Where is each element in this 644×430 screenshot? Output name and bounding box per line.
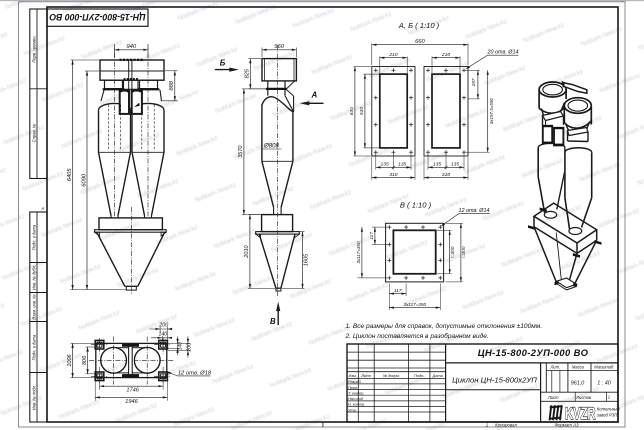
- svg-text:Листов: Листов: [575, 395, 592, 400]
- svg-text:1. Все размеры для справок, до: 1. Все размеры для справок, допустимые о…: [346, 322, 543, 330]
- svg-text:140: 140: [158, 331, 167, 337]
- svg-text:961,0: 961,0: [571, 381, 585, 387]
- svg-text:210: 210: [441, 52, 450, 58]
- svg-text:Подп. и дата: Подп. и дата: [31, 224, 36, 250]
- svg-text:3570: 3570: [238, 145, 244, 158]
- svg-text:ЦН-15-800-2УП-000 ВО: ЦН-15-800-2УП-000 ВО: [478, 347, 589, 358]
- svg-text:310: 310: [389, 172, 397, 178]
- svg-text:А, Б ( 1:10 ): А, Б ( 1:10 ): [398, 21, 440, 30]
- svg-text:Подп. и дата: Подп. и дата: [31, 334, 36, 360]
- svg-text:Инв. № дубл.: Инв. № дубл.: [31, 265, 36, 290]
- svg-text:630: 630: [349, 107, 355, 115]
- svg-text:Котельный: Котельный: [597, 407, 620, 412]
- svg-text:2. Циклон поставляется в разоб: 2. Циклон поставляется в разобранном вид…: [345, 332, 489, 340]
- svg-text:Перв. примен.: Перв. примен.: [31, 35, 36, 62]
- svg-text:660: 660: [415, 39, 425, 45]
- svg-text:6090: 6090: [81, 173, 87, 187]
- svg-text:135: 135: [451, 162, 459, 168]
- svg-text:KVZR: KVZR: [565, 404, 596, 423]
- svg-text:960: 960: [274, 44, 285, 50]
- svg-text:888: 888: [169, 80, 175, 90]
- svg-text:20 отв. Ø14: 20 отв. Ø14: [487, 49, 519, 55]
- svg-text:3х197,5=590: 3х197,5=590: [489, 98, 494, 125]
- svg-text:Б: Б: [220, 59, 226, 68]
- svg-text:Дата: Дата: [432, 374, 443, 378]
- svg-text:Н. контр.: Н. контр.: [348, 403, 365, 407]
- svg-text:Масса: Масса: [572, 365, 585, 370]
- svg-text:825: 825: [245, 68, 251, 78]
- svg-text:310: 310: [442, 172, 450, 178]
- svg-text:940: 940: [126, 44, 137, 50]
- svg-text:Формат А3: Формат А3: [554, 422, 579, 427]
- svg-text:Пров.: Пров.: [348, 386, 358, 390]
- svg-text:Подп.: Подп.: [414, 374, 424, 378]
- svg-text:1946: 1946: [125, 399, 138, 405]
- svg-text:12 отв. Ø14: 12 отв. Ø14: [459, 208, 490, 214]
- svg-text:Копировал: Копировал: [495, 422, 517, 427]
- svg-text:А: А: [41, 206, 45, 211]
- svg-text:197: 197: [471, 78, 477, 86]
- svg-text:Циклон ЦН-15-800х2УП: Циклон ЦН-15-800х2УП: [452, 376, 537, 385]
- svg-text:806: 806: [82, 355, 88, 365]
- svg-text:530: 530: [359, 107, 365, 115]
- svg-text:Утв.: Утв.: [348, 408, 357, 412]
- svg-text:□400: □400: [461, 246, 467, 257]
- svg-text:Т. контр.: Т. контр.: [348, 392, 364, 396]
- svg-text:6405: 6405: [67, 168, 73, 182]
- svg-text:135: 135: [433, 162, 441, 168]
- svg-text:2010: 2010: [244, 244, 250, 258]
- svg-text:210: 210: [388, 52, 397, 58]
- svg-text:1: 1: [608, 395, 610, 400]
- svg-text:В ( 1:10 ): В ( 1:10 ): [400, 201, 432, 210]
- svg-text:200: 200: [158, 323, 168, 329]
- svg-text:№ докум.: № докум.: [383, 374, 400, 378]
- svg-text:ЦН-15-800-2УП-000 ВО: ЦН-15-800-2УП-000 ВО: [49, 12, 145, 22]
- svg-text:1006: 1006: [67, 353, 73, 366]
- svg-text:Взам. инв. №: Взам. инв. №: [31, 294, 36, 320]
- svg-text:1605: 1605: [304, 253, 310, 266]
- svg-text:В: В: [270, 317, 276, 326]
- svg-text:А: А: [311, 91, 318, 100]
- svg-text:завод РЗП: завод РЗП: [596, 413, 618, 418]
- svg-text:Лит.: Лит.: [550, 365, 561, 370]
- svg-text:1 : 40: 1 : 40: [597, 381, 611, 387]
- svg-text:3х117=350: 3х117=350: [404, 302, 427, 307]
- svg-text:Инв. № подл.: Инв. № подл.: [31, 385, 36, 410]
- svg-text:135: 135: [398, 162, 406, 168]
- svg-text:Справ. №: Справ. №: [31, 123, 36, 142]
- svg-text:Масштаб: Масштаб: [594, 365, 614, 370]
- svg-text:3х117=350: 3х117=350: [356, 241, 361, 264]
- svg-text:□300: □300: [450, 246, 456, 257]
- svg-text:Разраб.: Разраб.: [348, 380, 362, 384]
- svg-text:140: 140: [177, 342, 183, 351]
- svg-text:117: 117: [369, 232, 375, 240]
- svg-text:Лист: Лист: [360, 374, 371, 378]
- svg-text:135: 135: [381, 162, 389, 168]
- svg-text:200: 200: [187, 343, 193, 353]
- svg-text:Нач.отд: Нач.отд: [348, 397, 363, 401]
- svg-text:117: 117: [394, 288, 402, 294]
- svg-text:Лист: Лист: [547, 395, 559, 400]
- svg-text:Изм.: Изм.: [349, 374, 357, 378]
- svg-text:1746: 1746: [126, 387, 139, 393]
